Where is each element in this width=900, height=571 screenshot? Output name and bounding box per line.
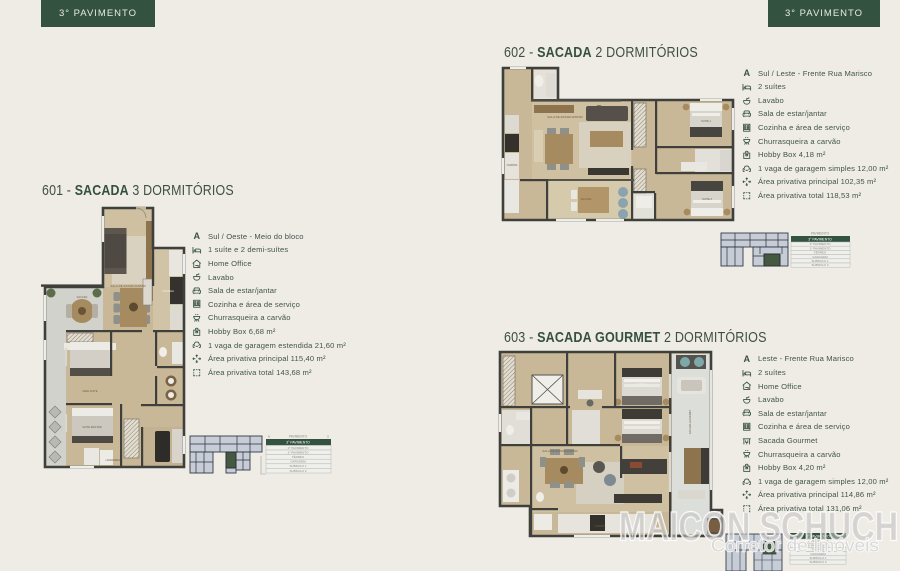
svg-text:SUITE 2: SUITE 2 bbox=[702, 197, 712, 201]
svg-text:SALA DE ESTAR/JANTAR: SALA DE ESTAR/JANTAR bbox=[110, 284, 146, 288]
svg-text:PAVIMENTO: PAVIMENTO bbox=[811, 231, 830, 235]
svg-text:Corretor de Imóveis: Corretor de Imóveis bbox=[711, 535, 879, 556]
svg-text:SACADA: SACADA bbox=[581, 197, 592, 201]
svg-text:3° PAVIMENTO: 3° PAVIMENTO bbox=[808, 237, 832, 241]
svg-text:SUITE MASTER: SUITE MASTER bbox=[82, 425, 101, 429]
svg-text:N: N bbox=[268, 435, 270, 439]
svg-text:2° PAVIMENTO: 2° PAVIMENTO bbox=[288, 446, 310, 450]
svg-text:1° PAVIMENTO: 1° PAVIMENTO bbox=[288, 450, 310, 454]
svg-text:A: A bbox=[193, 232, 200, 241]
svg-text:SUBSOLO 2: SUBSOLO 2 bbox=[289, 469, 306, 473]
svg-text:A: A bbox=[743, 354, 750, 363]
svg-text:S: S bbox=[327, 435, 329, 439]
svg-text:TÉRREO: TÉRREO bbox=[292, 454, 305, 459]
svg-text:SUITE 1: SUITE 1 bbox=[701, 119, 711, 123]
svg-text:SALA DE ESTAR/JANTAR: SALA DE ESTAR/JANTAR bbox=[542, 449, 578, 453]
svg-text:A: A bbox=[743, 69, 750, 78]
svg-text:COZINHA: COZINHA bbox=[162, 289, 174, 293]
svg-text:GARAGEM: GARAGEM bbox=[290, 460, 306, 464]
svg-text:SUBSOLO 2: SUBSOLO 2 bbox=[811, 263, 828, 267]
svg-text:SUITE 1: SUITE 1 bbox=[637, 382, 647, 386]
svg-text:LAVANDERIA: LAVANDERIA bbox=[106, 459, 121, 462]
svg-text:SACADA: SACADA bbox=[77, 295, 88, 299]
svg-text:SUITE 2: SUITE 2 bbox=[637, 425, 647, 429]
svg-text:SALA DE ESTAR/JANTAR: SALA DE ESTAR/JANTAR bbox=[547, 115, 583, 119]
svg-text:PAVIMENTO: PAVIMENTO bbox=[289, 435, 308, 439]
svg-text:3° PAVIMENTO: 3° PAVIMENTO bbox=[286, 441, 310, 445]
svg-text:DEMI-SUITE: DEMI-SUITE bbox=[83, 389, 98, 393]
svg-text:COZINHA: COZINHA bbox=[507, 164, 518, 167]
svg-text:SUBSOLO 1: SUBSOLO 1 bbox=[289, 464, 306, 468]
svg-text:SACADA GOURMET: SACADA GOURMET bbox=[688, 409, 692, 434]
